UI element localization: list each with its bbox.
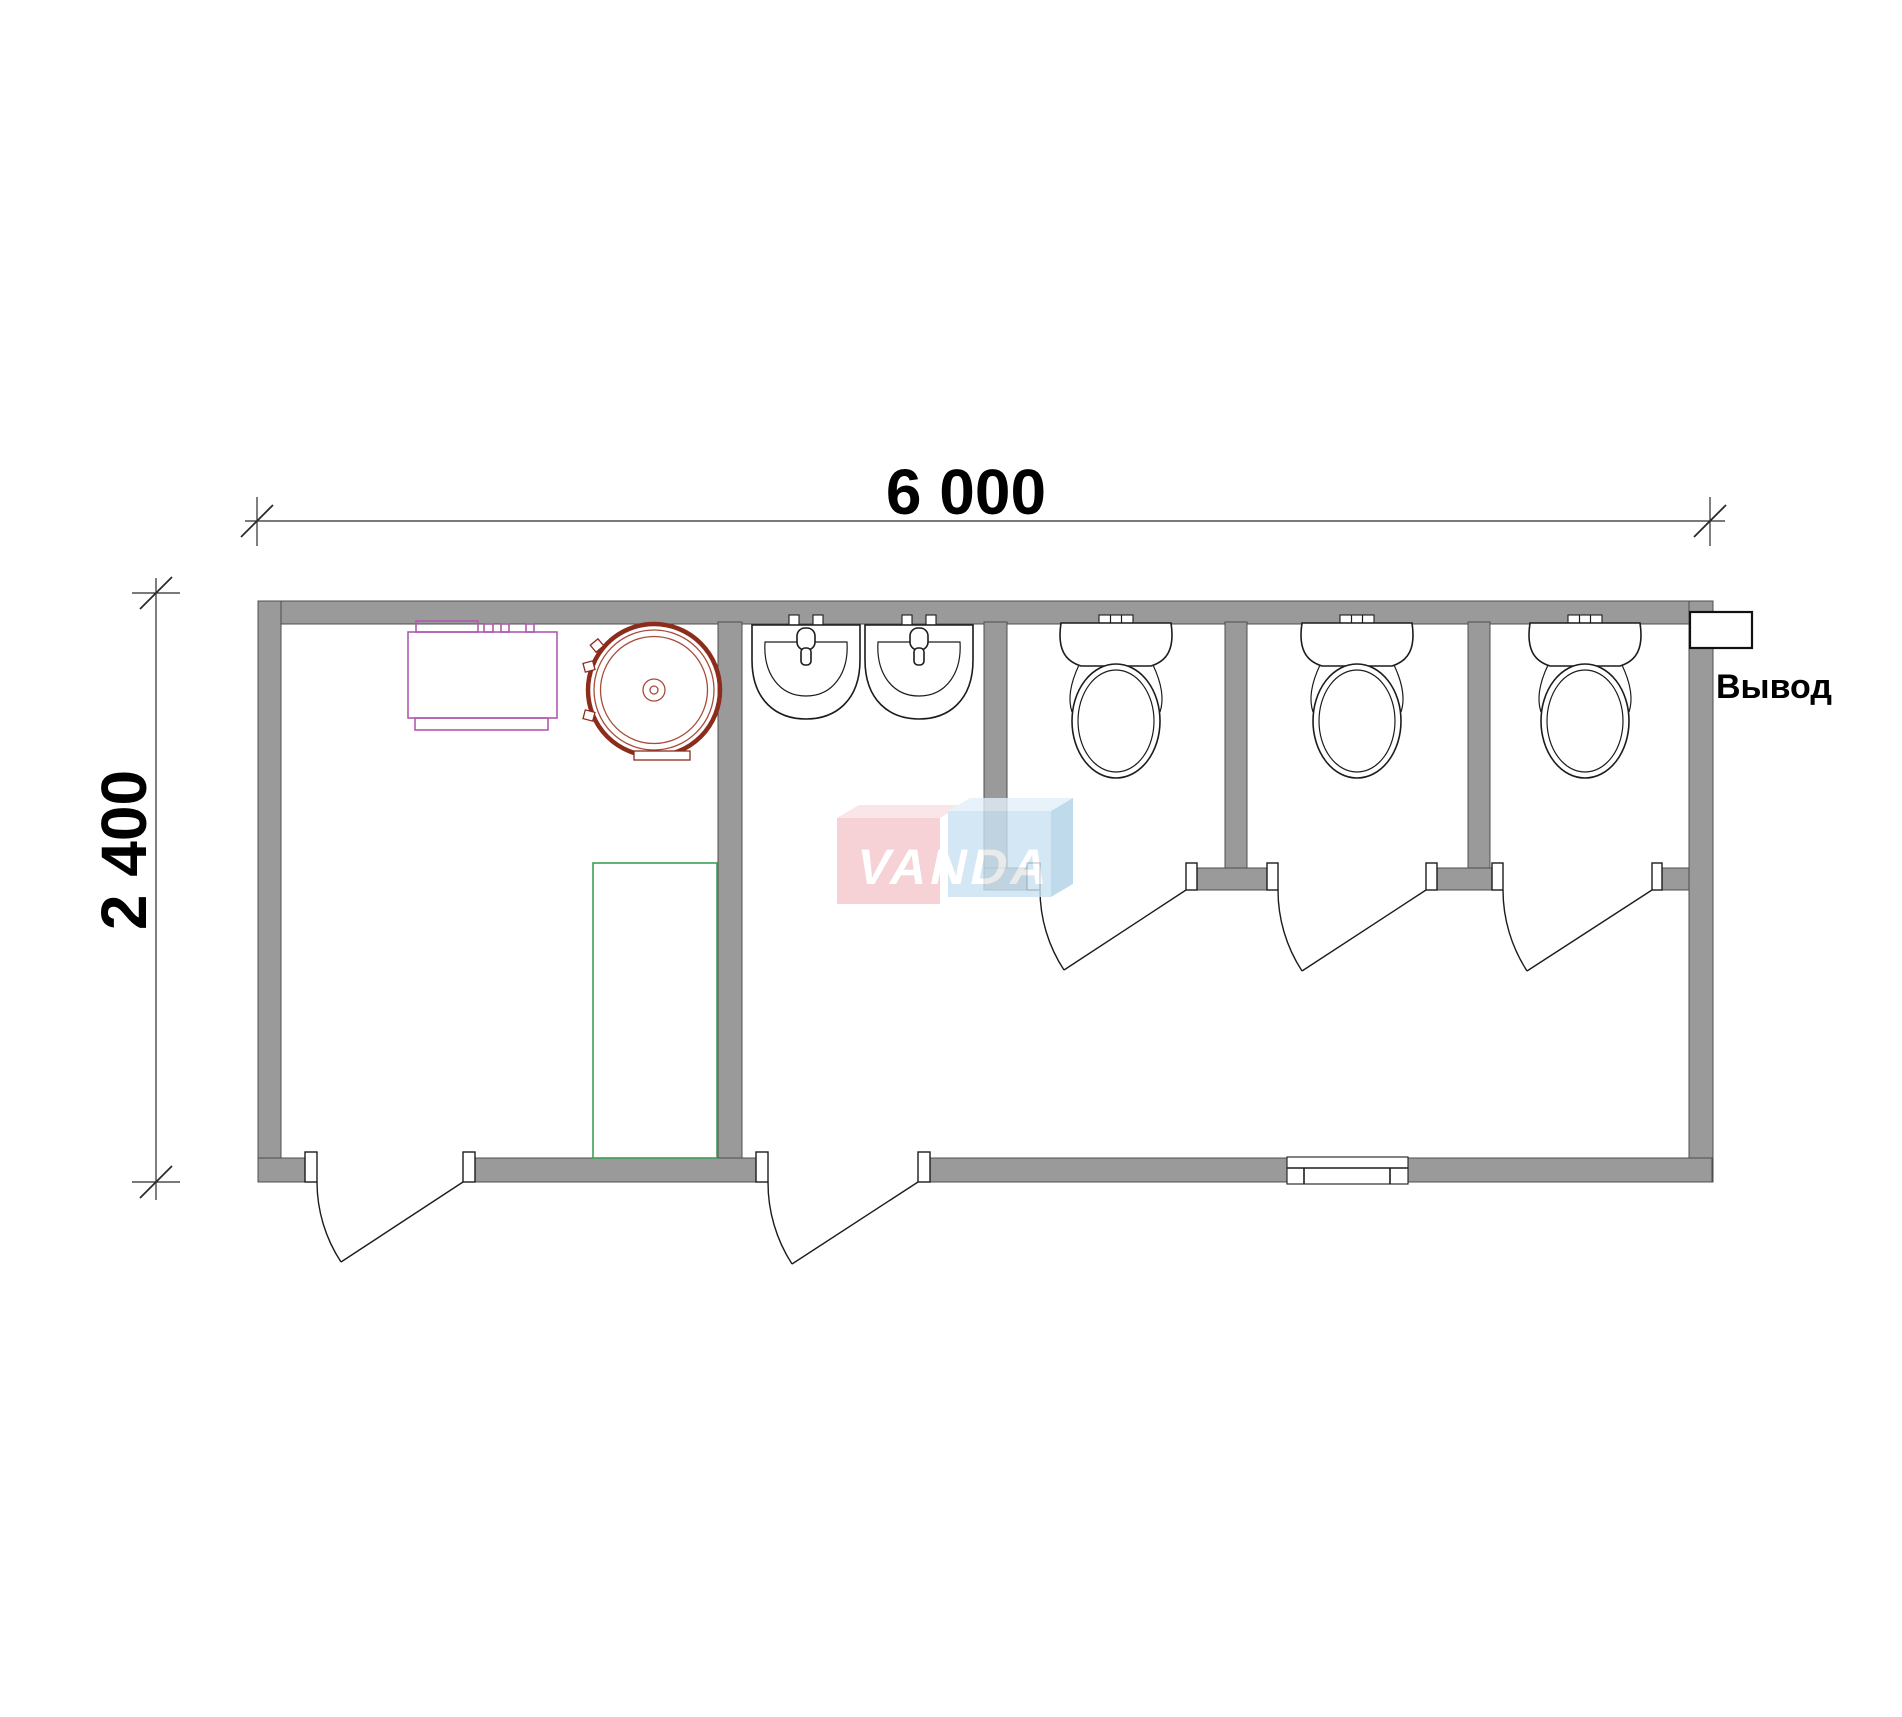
jamb-stall-2-left (1267, 863, 1278, 890)
door-swing-arc (317, 1182, 341, 1262)
heater-connector (484, 624, 493, 632)
window (1287, 1157, 1408, 1184)
dimension-width: 6 000 (241, 456, 1726, 546)
wall-stub-right (1662, 868, 1689, 890)
stall-door-1 (1040, 890, 1186, 970)
logo-text: VANDA (852, 839, 1058, 895)
door-jambs (305, 863, 1662, 1182)
jamb-entry-door-2-left (756, 1152, 768, 1182)
tank-fitting (583, 661, 595, 672)
shower-tray (593, 863, 717, 1158)
stall-door-2 (1278, 890, 1426, 971)
heater-bottom-flange (415, 718, 548, 730)
door-leaf (1064, 890, 1186, 970)
heater-connector (526, 624, 534, 632)
jamb-stall-2-right (1426, 863, 1437, 890)
heater-body (408, 632, 557, 718)
door-leaf (1527, 890, 1652, 971)
door-leaf (1302, 890, 1426, 971)
door-swing-arc (768, 1182, 792, 1264)
round-water-tank (583, 624, 720, 760)
door-swing-arc (1040, 890, 1064, 970)
floor-plan-page: { "drawing": { "type": "architectural-fl… (0, 0, 1902, 1717)
partition-stall-2-3-stub (1437, 868, 1492, 890)
outlet-label: Вывод (1716, 668, 1832, 706)
wall-bottom-seg-2 (475, 1158, 756, 1182)
entry-door-washroom (768, 1182, 918, 1264)
width-dimension-label: 6 000 (886, 456, 1046, 528)
vanda-watermark: VANDA (837, 798, 1073, 904)
dimension-height: 2 400 (88, 577, 180, 1200)
stall-door-3 (1503, 890, 1652, 971)
logo-pink-top-face (837, 805, 962, 818)
toilet-3 (1529, 615, 1641, 778)
wall-bottom-seg-1 (258, 1158, 305, 1182)
toilet-2 (1301, 615, 1413, 778)
floor-plan-canvas: 6 000 2 400 (0, 0, 1902, 1717)
door-swing-arc (1503, 890, 1527, 971)
jamb-stall-3-right (1652, 863, 1662, 890)
tank-shell-inner (601, 637, 708, 744)
heater-connector (501, 624, 509, 632)
logo-blue-top-face (948, 798, 1073, 811)
height-dimension-label: 2 400 (88, 770, 160, 930)
washbasin-2 (865, 615, 973, 719)
door-leaf (341, 1182, 463, 1262)
tank-center-dot (650, 686, 658, 694)
tank-base-plate (634, 751, 690, 760)
toilet-1 (1060, 615, 1172, 778)
door-swing-arc (1278, 890, 1302, 971)
partition-stall-2-3 (1468, 622, 1490, 868)
partition-stall-1-2 (1225, 622, 1247, 868)
jamb-entry-door-1-left (305, 1152, 317, 1182)
door-leaf (792, 1182, 918, 1264)
entry-door-left-room (317, 1182, 463, 1262)
wall-left (258, 601, 281, 1182)
wall-right (1689, 601, 1713, 1182)
washbasin-1 (752, 615, 860, 719)
partition-stall-1-2-stub (1197, 868, 1267, 890)
wall-bottom-seg-3 (930, 1158, 1287, 1182)
tank-center-cap (643, 679, 665, 701)
tank-shell-outer (588, 624, 720, 756)
tank-fitting (583, 710, 595, 721)
jamb-stall-1-right (1186, 863, 1197, 890)
wall-leftroom-washroom (718, 622, 742, 1158)
tank-shell-mid (594, 630, 714, 750)
jamb-entry-door-2-right (918, 1152, 930, 1182)
outlet-box (1690, 612, 1752, 648)
water-heater (408, 621, 557, 730)
wall-bottom-seg-4 (1408, 1158, 1712, 1182)
jamb-stall-3-left (1492, 863, 1503, 890)
jamb-entry-door-1-right (463, 1152, 475, 1182)
doors (317, 890, 1652, 1264)
